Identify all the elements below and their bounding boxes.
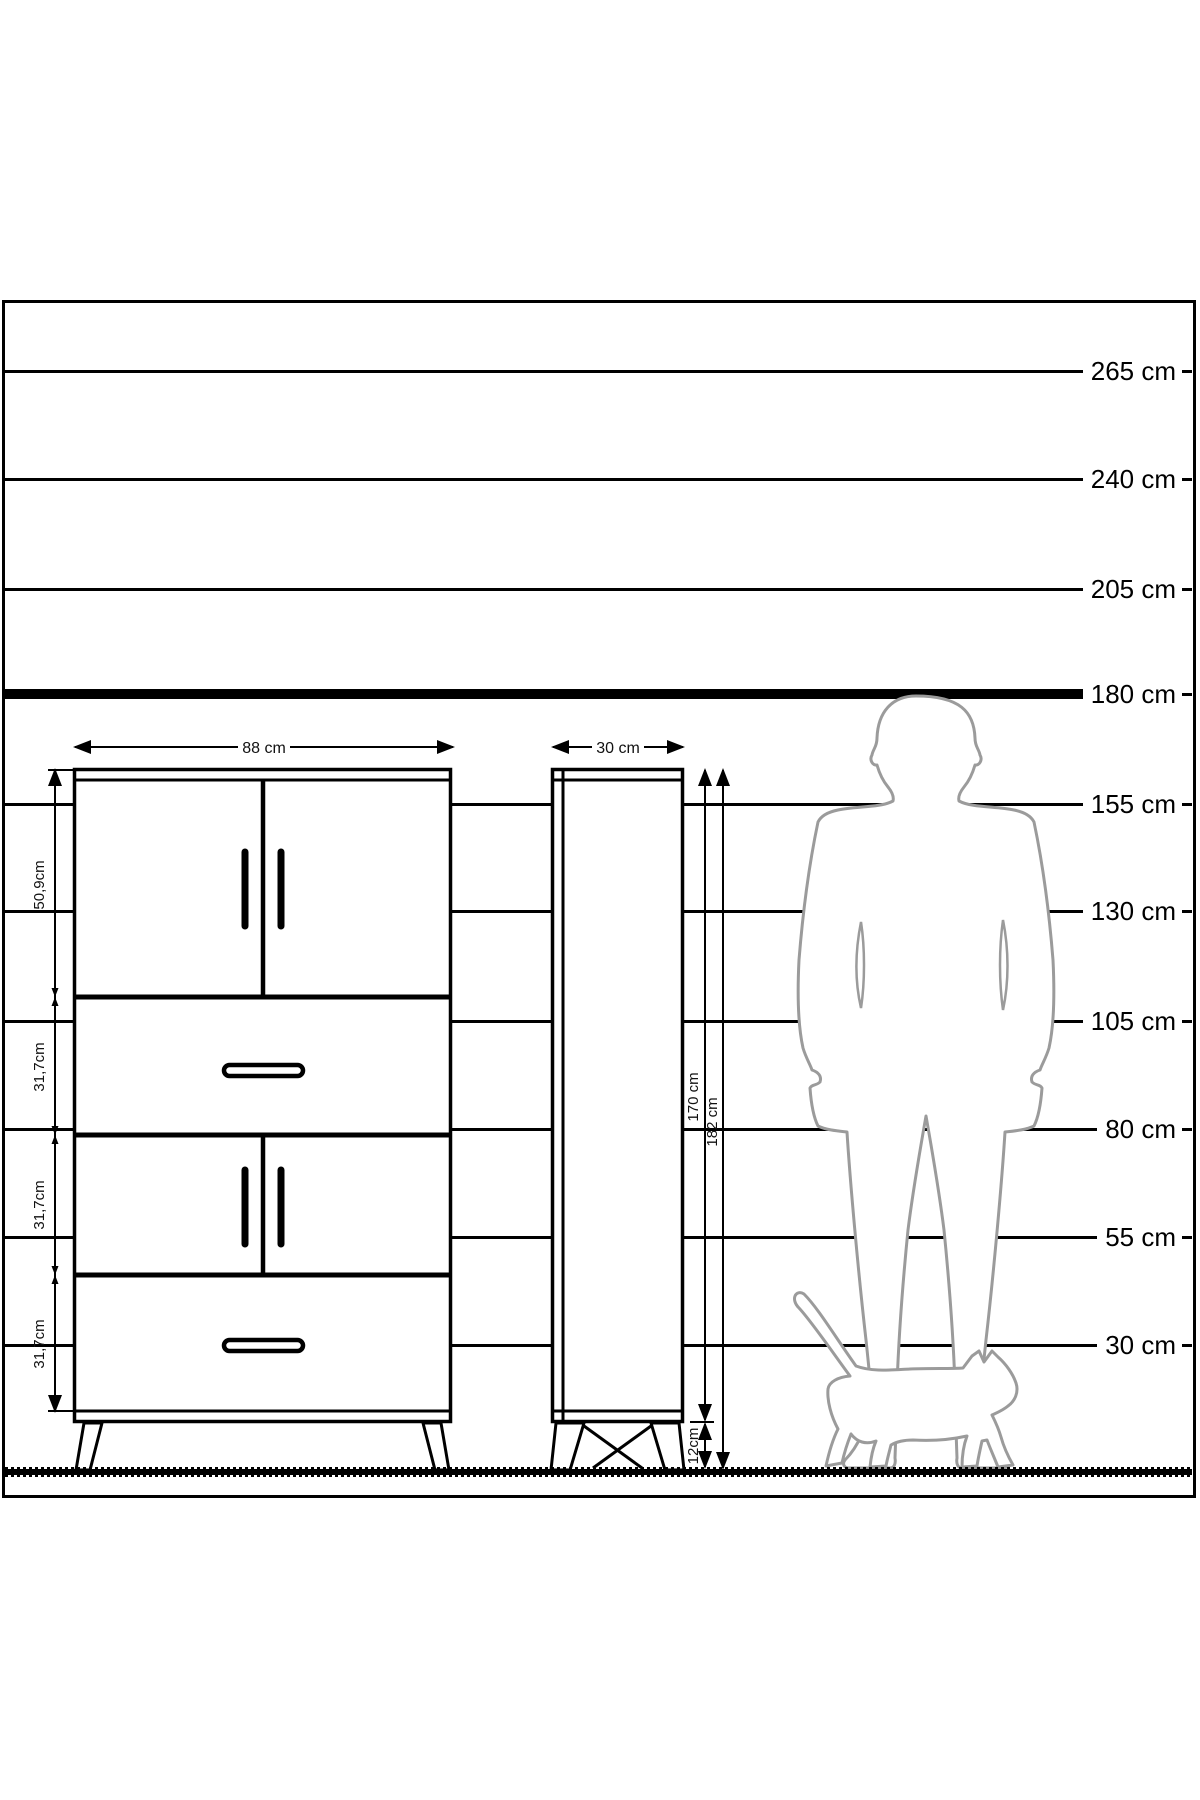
side-body <box>553 770 683 1422</box>
side-body-height-label: 170 cm <box>685 1072 702 1121</box>
side-leg-height-label: 12cm <box>685 1428 702 1465</box>
scale-tick <box>1182 1020 1192 1023</box>
scale-label-30: 30 cm <box>1097 1330 1182 1360</box>
scale-label-180: 180 cm <box>1083 679 1182 709</box>
front-width-label: 88 cm <box>242 740 286 757</box>
scale-row-205: 205 cm <box>5 574 1192 604</box>
side-leg-brace <box>584 1426 642 1468</box>
scale-line-240 <box>5 478 1083 481</box>
front-section-label-2: 31,7cm <box>31 1042 48 1091</box>
front-section-label-3: 31,7cm <box>31 1180 48 1229</box>
cabinet-side-view: 30 cm 170 cm 182 cm 12cm <box>480 735 740 1485</box>
dim-arrow-pair <box>52 1126 59 1144</box>
side-leg-left <box>551 1423 584 1470</box>
cat-silhouette <box>780 1285 1040 1475</box>
scale-tick <box>1182 1128 1192 1131</box>
scale-tick <box>1182 910 1192 913</box>
drawer-handle[interactable] <box>224 1065 303 1076</box>
scale-tick <box>1182 803 1192 806</box>
cat-outline <box>795 1293 1018 1467</box>
scale-label-55: 55 cm <box>1097 1222 1182 1252</box>
scale-row-240: 240 cm <box>5 464 1192 494</box>
scale-tick <box>1182 478 1192 481</box>
side-depth-label: 30 cm <box>596 740 640 757</box>
scale-row-265: 265 cm <box>5 356 1192 386</box>
scale-label-240: 240 cm <box>1083 464 1182 494</box>
front-leg-right <box>423 1423 449 1470</box>
scale-label-155: 155 cm <box>1083 789 1182 819</box>
scale-label-130: 130 cm <box>1083 896 1182 926</box>
furniture-dimension-diagram: { "scale": { "labels": ["265 cm","240 cm… <box>0 0 1200 1800</box>
dim-arrow-pair <box>52 1266 59 1284</box>
front-leg-left <box>76 1423 102 1470</box>
front-section-label-1: 50,9cm <box>31 860 48 909</box>
scale-tick <box>1182 1236 1192 1239</box>
front-section-label-4: 31,7cm <box>31 1319 48 1368</box>
scale-tick <box>1182 370 1192 373</box>
cabinet-front-view: 88 cm 50,9cm 31,7cm 31,7cm 31,7cm <box>20 735 470 1485</box>
floor-line <box>5 1467 1192 1477</box>
jacket-slit-right <box>1000 920 1008 1010</box>
scale-label-205: 205 cm <box>1083 574 1182 604</box>
scale-label-80: 80 cm <box>1097 1114 1182 1144</box>
jacket-slit-left <box>857 922 865 1008</box>
scale-line-265 <box>5 370 1083 373</box>
side-leg-brace <box>593 1426 651 1468</box>
dim-arrow-pair <box>52 988 59 1006</box>
scale-line-205 <box>5 588 1083 591</box>
scale-tick <box>1182 1344 1192 1347</box>
scale-tick <box>1182 588 1192 591</box>
scale-tick <box>1182 693 1192 696</box>
side-total-height-label: 182 cm <box>704 1097 721 1146</box>
scale-label-105: 105 cm <box>1083 1006 1182 1036</box>
side-leg-right <box>651 1423 684 1470</box>
drawer-handle[interactable] <box>224 1340 303 1351</box>
scale-label-265: 265 cm <box>1083 356 1182 386</box>
